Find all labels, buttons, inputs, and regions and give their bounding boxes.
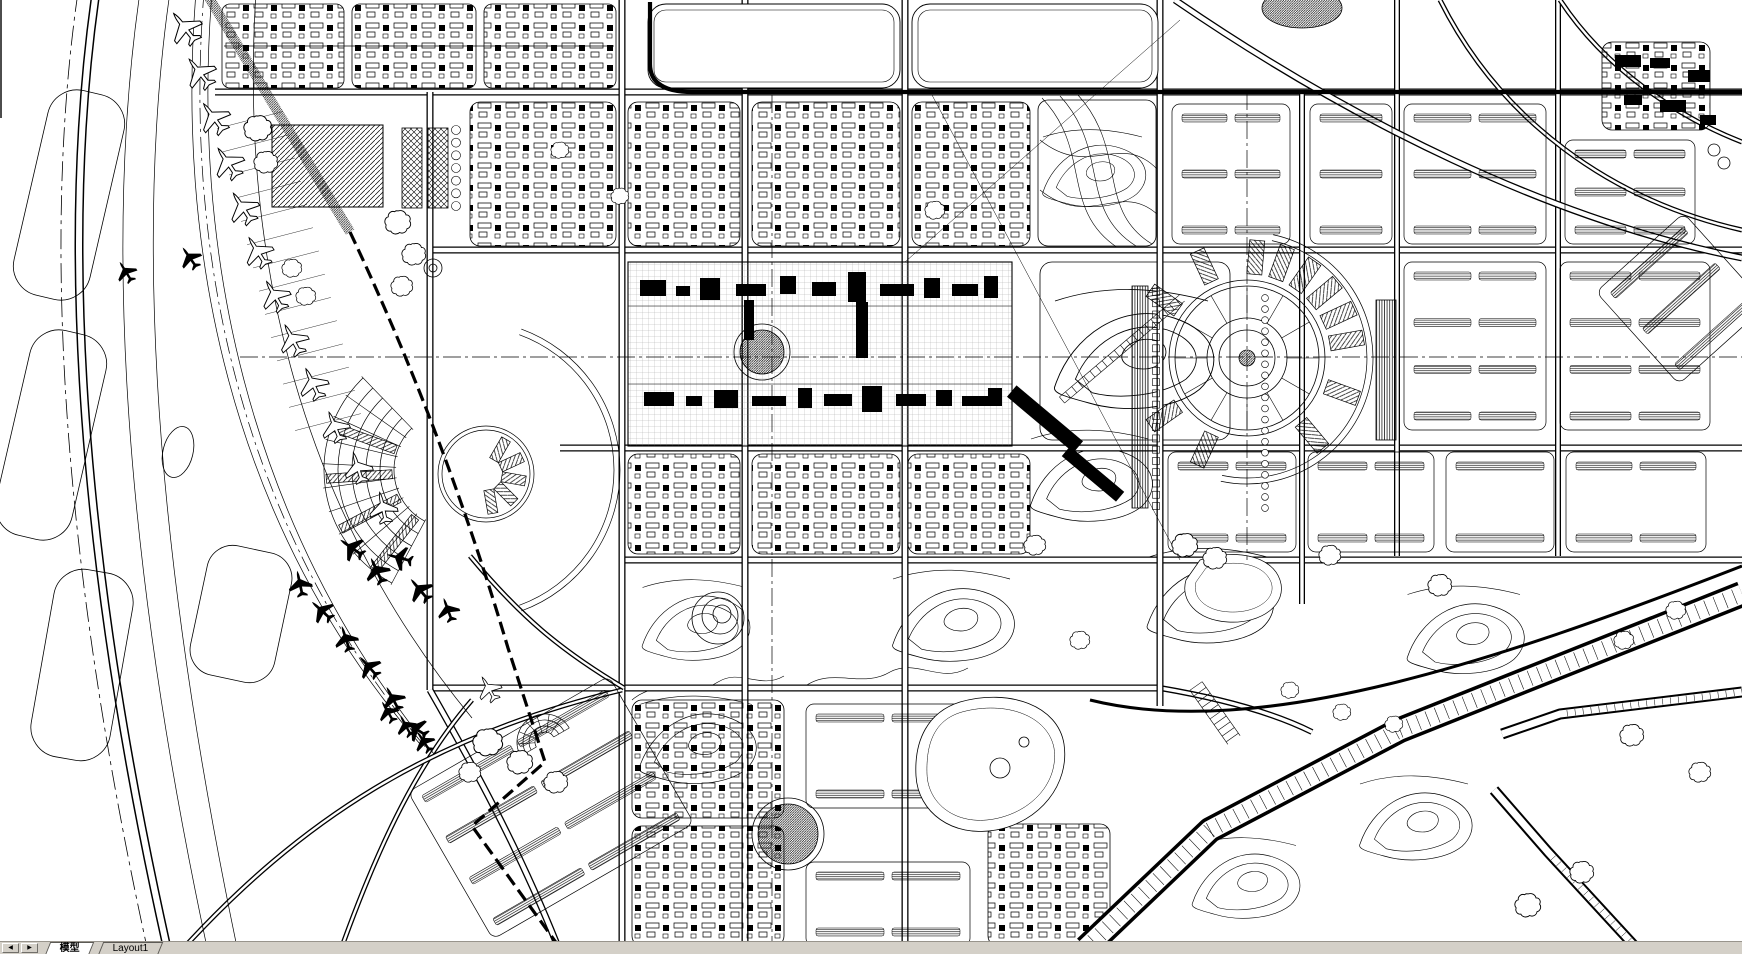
cbd-towers	[848, 272, 866, 302]
model-space-viewport[interactable]	[0, 0, 1742, 941]
hamlet-buildings	[1660, 100, 1686, 112]
residential-block	[1639, 272, 1700, 280]
bridge	[1226, 733, 1238, 742]
residential-block	[1479, 319, 1536, 327]
terminal-parking	[484, 489, 498, 514]
residential-block	[1235, 170, 1280, 178]
residential-block-tilted	[445, 786, 537, 844]
residential-block	[1456, 462, 1544, 470]
city-block	[752, 454, 900, 554]
residential-block	[1236, 462, 1286, 470]
city-block	[632, 700, 784, 818]
tank-row	[452, 126, 461, 135]
bridge	[1218, 722, 1230, 731]
residential-block	[1560, 262, 1710, 430]
next-tabs-button[interactable]: ▶	[21, 943, 38, 953]
residential-block	[1570, 365, 1631, 373]
11	[362, 376, 413, 429]
residential-block	[816, 872, 884, 880]
stream-ribbon	[1040, 140, 1158, 170]
tree-cluster	[282, 259, 302, 277]
hamlet-buildings	[1624, 95, 1642, 105]
airplane-icon	[191, 95, 236, 141]
cbd-towers	[714, 390, 738, 408]
tab-layout1[interactable]: Layout1	[97, 942, 163, 954]
residential-block	[1414, 319, 1471, 327]
residential-block	[1320, 226, 1382, 234]
residential-block	[1375, 462, 1424, 470]
cbd-towers	[812, 282, 836, 296]
cbd-towers	[700, 278, 720, 300]
taxiway-centerline	[200, 0, 427, 749]
airplane-icon	[304, 593, 340, 628]
cbd-towers	[644, 392, 674, 406]
residential-block	[1479, 170, 1536, 178]
residential-block	[1235, 114, 1280, 122]
residential-block	[892, 928, 960, 936]
tree-cluster	[385, 211, 411, 234]
street-trees	[1262, 438, 1269, 445]
residential-block	[1456, 534, 1544, 542]
city-block	[470, 102, 616, 246]
tab-strip-filler	[160, 942, 1742, 954]
street-trees	[1262, 482, 1269, 489]
radial-building	[1146, 284, 1182, 316]
cbd-diagonal-slab	[1008, 386, 1083, 452]
12	[1211, 296, 1227, 324]
residential-block	[1639, 365, 1700, 373]
airplane-icon	[111, 256, 141, 287]
park-contours	[1192, 838, 1300, 919]
residential-block	[1575, 150, 1626, 158]
airplane-icon	[286, 568, 315, 599]
street-trees	[1262, 427, 1269, 434]
bridge	[1222, 727, 1234, 736]
hamlet-buildings	[1700, 115, 1716, 125]
city-block	[752, 102, 900, 246]
12	[1211, 393, 1227, 421]
street-trees	[1262, 416, 1269, 423]
pond-rings	[713, 605, 731, 623]
12	[1267, 393, 1283, 421]
residential-block	[1570, 412, 1631, 420]
tree-cluster	[507, 751, 533, 774]
hamlet-buildings	[1650, 58, 1670, 68]
city-block	[912, 102, 1030, 246]
radial-building	[1247, 240, 1265, 275]
residential-block	[1640, 462, 1696, 470]
residential-block	[1414, 170, 1471, 178]
residential-block	[1414, 272, 1471, 280]
cbd-towers	[896, 394, 926, 406]
city-block	[628, 102, 740, 246]
tab-model[interactable]: 模型	[44, 942, 94, 954]
radial-building	[1320, 301, 1357, 329]
stadium-oval	[1262, 0, 1342, 28]
pond-rings	[702, 598, 738, 634]
residential-block	[1414, 412, 1471, 420]
street-trees	[1262, 328, 1269, 335]
tree-cluster	[1203, 547, 1227, 569]
city-block	[908, 454, 1030, 554]
stream-ribbon	[1060, 96, 1136, 246]
residential-block	[1634, 150, 1685, 158]
hamlet-buildings	[1615, 55, 1641, 67]
stepped-walk	[1072, 387, 1077, 393]
cbd-towers	[752, 396, 786, 406]
terminal-parking	[501, 472, 526, 486]
residential-block-diagonal	[1674, 299, 1742, 371]
apron-stand-lines	[247, 228, 313, 245]
residential-block	[1235, 226, 1280, 234]
road-curve	[470, 556, 624, 688]
tree-cluster	[1689, 762, 1711, 782]
residential-block	[1575, 226, 1626, 234]
residential-block	[1639, 412, 1700, 420]
terminal-pier	[371, 515, 419, 573]
radial-building	[1328, 330, 1364, 351]
radial-building	[1323, 380, 1360, 406]
stepped-walk	[1096, 366, 1101, 372]
stepped-walk	[1102, 361, 1107, 367]
street-trees	[1262, 449, 1269, 456]
airplane-icon	[272, 318, 313, 361]
road-curve	[470, 556, 624, 688]
river-channel	[1086, 594, 1742, 941]
residential-block	[1308, 452, 1434, 552]
residential-block	[1560, 262, 1710, 430]
cbd-diagonal-slab	[1062, 447, 1123, 501]
cbd-towers	[988, 388, 1002, 406]
cad-window: ◀ ▶ 模型 Layout1	[0, 0, 1742, 954]
landside-loop-road	[521, 329, 620, 611]
park-contours	[1043, 130, 1146, 207]
residential-block	[1404, 262, 1546, 430]
cbd-towers	[924, 278, 940, 298]
airplane-icon	[433, 594, 463, 625]
vacant-block	[912, 4, 1158, 88]
tank-row	[452, 189, 461, 198]
street-trees	[1262, 505, 1269, 512]
tab-layout1-label: Layout1	[113, 943, 149, 954]
park-block	[1038, 100, 1156, 246]
cbd-towers	[880, 284, 914, 296]
stepped-walk	[1090, 371, 1095, 377]
tree-cluster	[1319, 545, 1341, 565]
grass-island	[157, 423, 199, 481]
12	[1282, 322, 1310, 338]
central-plaza	[740, 330, 784, 374]
residential-block	[1575, 188, 1626, 196]
street-trees	[1262, 460, 1269, 467]
layout-tabs-bar: ◀ ▶ 模型 Layout1	[0, 941, 1742, 954]
terminal-tower	[428, 128, 448, 208]
tree-cluster	[296, 287, 316, 305]
residential-block	[1182, 226, 1227, 234]
garden-plaza	[758, 804, 818, 864]
airplane-icon	[333, 529, 370, 566]
residential-block	[1404, 262, 1546, 430]
previous-tabs-button[interactable]: ◀	[2, 943, 19, 953]
pond-rings	[692, 592, 744, 644]
airplane-icon	[173, 241, 206, 274]
park-contours	[1360, 776, 1473, 860]
residential-block	[1479, 272, 1536, 280]
residential-block	[1576, 534, 1632, 542]
street-trees	[1262, 372, 1269, 379]
residential-block	[1479, 412, 1536, 420]
residential-block	[1570, 319, 1631, 327]
residential-block	[1375, 534, 1424, 542]
taxiway-edge	[208, 0, 434, 754]
city-block	[628, 454, 740, 554]
street-trees	[1262, 317, 1269, 324]
radial-building	[1328, 330, 1364, 351]
tank-row	[452, 176, 461, 185]
terminal-pier	[371, 515, 419, 573]
residential-block	[892, 872, 960, 880]
residential-block	[1414, 226, 1471, 234]
radial-building	[1320, 301, 1357, 329]
street-trees	[1262, 394, 1269, 401]
cbd-towers	[676, 286, 690, 296]
radial-building	[1323, 380, 1360, 406]
residential-block	[816, 928, 884, 936]
cbd-towers	[962, 396, 992, 406]
radial-building	[1307, 276, 1343, 309]
cbd-towers	[686, 396, 702, 406]
residential-block	[1172, 104, 1290, 244]
street-trees	[1262, 350, 1269, 357]
terminal-parking	[501, 472, 526, 486]
12	[1282, 378, 1310, 394]
residential-block	[816, 790, 884, 798]
residential-block	[1479, 365, 1536, 373]
residential-block	[1320, 114, 1382, 122]
cbd-towers	[824, 394, 852, 406]
residential-block-tilted	[469, 827, 561, 885]
terminal-parking	[494, 482, 518, 506]
residential-block	[1182, 114, 1227, 122]
residential-block	[816, 714, 884, 722]
bridge	[1214, 716, 1226, 725]
terminal-parking	[494, 482, 518, 506]
radial-building	[1146, 284, 1182, 316]
canal	[1502, 692, 1742, 734]
terminal-ring-road	[438, 426, 534, 522]
tree-cluster	[1428, 574, 1452, 596]
tree-cluster	[1333, 704, 1351, 720]
street-trees	[1262, 471, 1269, 478]
tree-cluster	[1570, 861, 1594, 883]
master-plan-drawing	[0, 0, 1742, 941]
cbd-towers	[798, 388, 812, 408]
residential-block	[1634, 188, 1685, 196]
park-contours	[1407, 586, 1524, 674]
residential-block	[1414, 365, 1471, 373]
bridge	[1190, 682, 1202, 691]
cbd-towers	[952, 284, 978, 296]
12	[1185, 378, 1213, 394]
street-trees	[1262, 339, 1269, 346]
12	[1267, 296, 1283, 324]
stepped-walk	[1108, 356, 1113, 362]
colonnade-band	[1376, 300, 1396, 440]
landside-loop-road	[519, 335, 614, 606]
cbd-towers	[736, 284, 766, 296]
residential-block	[1318, 534, 1367, 542]
cbd-towers	[984, 276, 998, 298]
vacant-block	[648, 4, 900, 88]
tab-model-label: 模型	[60, 943, 80, 954]
residential-block	[1236, 534, 1286, 542]
airplane-icon	[254, 274, 296, 317]
runway-island	[7, 84, 130, 306]
8	[554, 728, 570, 737]
tree-cluster	[402, 243, 426, 265]
radial-building	[1289, 257, 1321, 293]
tree-cluster	[473, 729, 503, 756]
tank-row	[452, 138, 461, 147]
residential-block	[806, 862, 970, 941]
taxiway-island	[185, 541, 297, 688]
residential-block	[1446, 452, 1554, 552]
runway	[79, 0, 168, 941]
terminal-tower	[402, 128, 422, 208]
tank-row	[452, 151, 461, 160]
residential-block	[1576, 462, 1632, 470]
tree-cluster	[1024, 535, 1046, 555]
tree-cluster	[1281, 682, 1299, 698]
tree-cluster	[1620, 724, 1644, 746]
residential-block	[1566, 452, 1706, 552]
stepped-walk	[1059, 397, 1064, 403]
street-trees	[1262, 494, 1269, 501]
cbd-towers	[780, 276, 796, 294]
cbd-towers	[856, 302, 868, 358]
street-trees	[1262, 361, 1269, 368]
terminal-parking	[484, 489, 498, 514]
park-contours	[893, 570, 1015, 661]
water-tank	[1718, 157, 1730, 169]
tree-cluster	[1070, 631, 1090, 649]
residential-block	[1320, 170, 1382, 178]
12	[1185, 322, 1213, 338]
tank-row	[452, 164, 461, 173]
hamlet-buildings	[1688, 70, 1710, 82]
radial-building	[1307, 276, 1343, 309]
tree-cluster	[611, 188, 629, 204]
radial-building	[1289, 257, 1321, 293]
street-trees	[1262, 383, 1269, 390]
tree-cluster	[391, 276, 413, 296]
water-tank	[1708, 144, 1720, 156]
city-block	[988, 824, 1110, 941]
tree-cluster	[1515, 894, 1541, 917]
street-trees	[1262, 405, 1269, 412]
park-contours	[642, 580, 750, 661]
tank-row	[452, 202, 461, 211]
residential-block	[1479, 114, 1536, 122]
airplane-icon	[220, 185, 265, 231]
airplane-icon	[316, 407, 354, 446]
street-trees	[1262, 306, 1269, 313]
stepped-walk	[1120, 345, 1125, 351]
stepped-walk	[1114, 350, 1119, 356]
residential-block	[1479, 226, 1536, 234]
residential-block	[1318, 462, 1367, 470]
cbd-towers	[862, 386, 882, 412]
cbd-towers	[936, 390, 952, 406]
residential-block	[1570, 272, 1631, 280]
residential-block	[1640, 534, 1696, 542]
street-trees	[1262, 295, 1269, 302]
airplane-icon	[293, 363, 333, 405]
tree-cluster	[244, 116, 272, 141]
residential-block	[1182, 170, 1227, 178]
residential-block	[1414, 114, 1471, 122]
terminal-concourse-arcs	[394, 428, 425, 521]
cbd-towers	[640, 280, 666, 296]
runway-edge	[153, 0, 238, 941]
triangle-left-icon: ◀	[8, 945, 13, 951]
radial-building	[1247, 240, 1265, 275]
triangle-right-icon: ▶	[27, 945, 32, 951]
stream-ribbon	[1042, 98, 1118, 248]
